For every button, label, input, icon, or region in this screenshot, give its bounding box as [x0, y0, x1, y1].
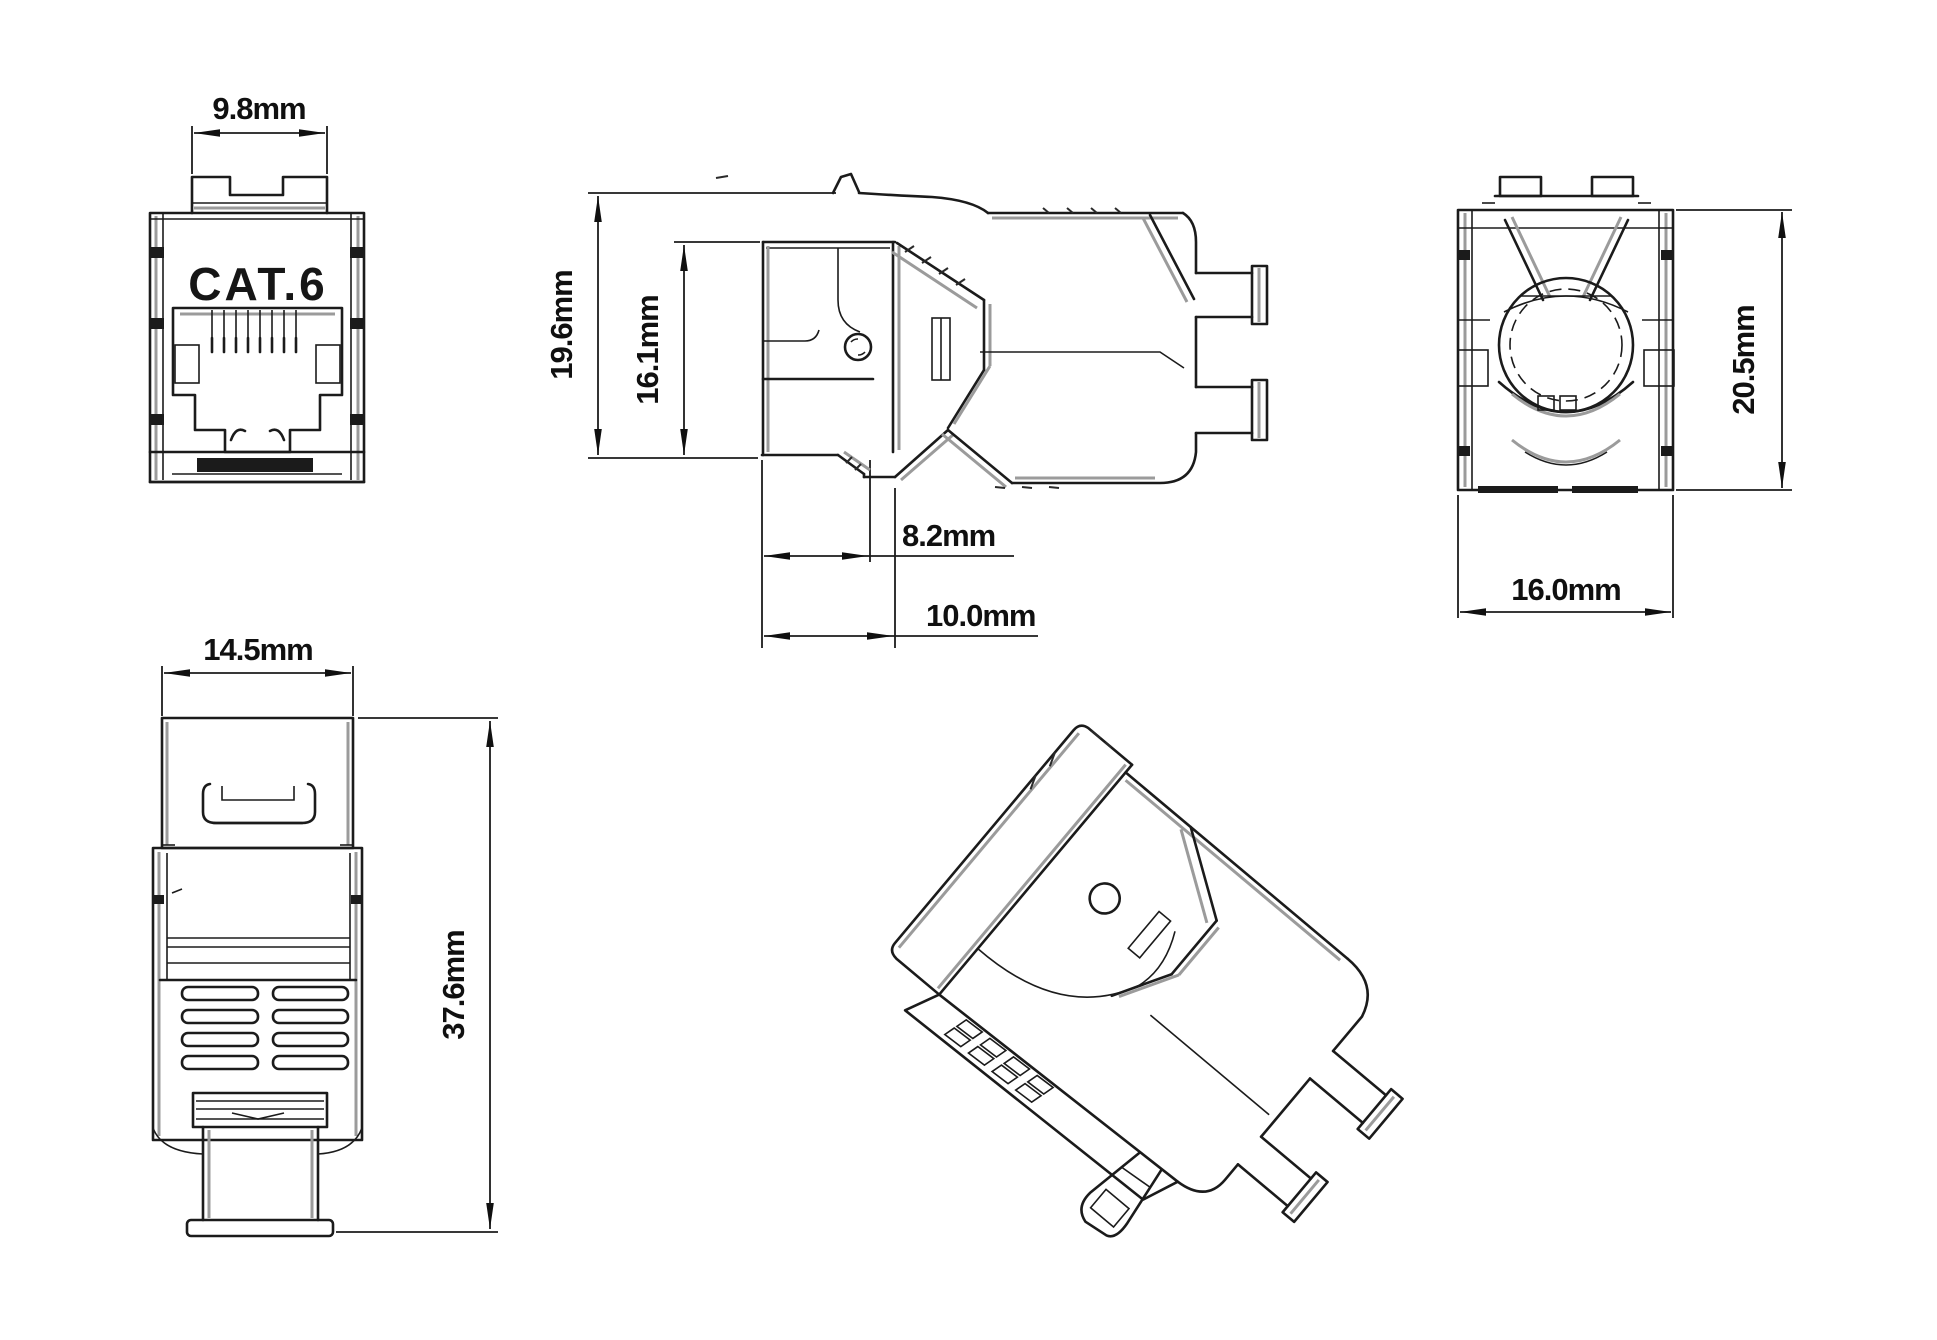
technical-drawing-canvas: 9.8mm CAT.6: [0, 0, 1937, 1340]
rj45-port: [173, 308, 342, 452]
side-body: [762, 174, 1267, 488]
dim-label-overall-length: 37.6mm: [436, 930, 471, 1039]
iso-vent-band: [905, 977, 1178, 1216]
top-view: 14.5mm: [153, 632, 498, 1236]
dimension-overall-length: 37.6mm: [336, 718, 498, 1232]
top-u-handle: [203, 784, 315, 823]
dimension-rear-width: 16.0mm: [1458, 495, 1673, 618]
iso-top-pin: [1305, 1045, 1403, 1139]
front-body: CAT.6: [150, 213, 364, 482]
dimension-rear-height: 20.5mm: [1676, 210, 1792, 490]
side-latch-plate: [892, 243, 990, 428]
dim-label-latch-depth: 8.2mm: [902, 518, 995, 553]
cable-entry-circle: [1499, 278, 1633, 465]
side-view: 19.6mm 16.1mm 8.2mm 10.0mm: [544, 174, 1267, 648]
top-rear-flange: [187, 1220, 333, 1236]
top-front-cap: [162, 718, 353, 848]
rear-body: [1458, 210, 1674, 493]
vent-slots: [182, 987, 348, 1069]
top-rear-stem: [187, 1093, 333, 1236]
dim-label-rear-width: 16.0mm: [1511, 572, 1620, 607]
technical-drawing-page: 9.8mm CAT.6: [0, 0, 1937, 1340]
dimension-slot-width: 9.8mm: [192, 91, 327, 174]
top-main-body: [153, 845, 362, 1154]
dim-label-body-height: 16.1mm: [630, 295, 665, 404]
dimension-front-depth: 10.0mm: [764, 488, 1038, 648]
side-top-pin: [1196, 266, 1267, 324]
rear-view: 20.5mm 16.0mm: [1458, 177, 1792, 618]
dimension-body-height: 16.1mm: [630, 242, 760, 455]
rj45-pin-contacts: [212, 310, 296, 352]
front-view: 9.8mm CAT.6: [150, 91, 364, 482]
dimension-overall-height: 19.6mm: [544, 176, 836, 458]
dim-label-top-width: 14.5mm: [203, 632, 312, 667]
iso-bottom-pin: [1233, 1131, 1328, 1222]
side-latch-tip: [833, 174, 859, 193]
front-bottom: [150, 452, 364, 482]
iso-housing: [939, 772, 1384, 1211]
front-bottom-bar: [197, 458, 313, 472]
dim-label-overall-height: 19.6mm: [544, 270, 579, 379]
dim-label-slot-width: 9.8mm: [212, 91, 305, 126]
dim-label-rear-height: 20.5mm: [1726, 305, 1761, 414]
side-screw-hole: [845, 334, 871, 360]
isometric-view: [836, 722, 1455, 1327]
side-bottom-pin: [1196, 380, 1267, 440]
dimension-top-width: 14.5mm: [162, 632, 353, 716]
cat6-marking: CAT.6: [188, 258, 327, 310]
iso-front-cap: [888, 722, 1132, 995]
side-latch-foot: [838, 430, 954, 480]
dim-label-front-depth: 10.0mm: [926, 598, 1035, 633]
front-top-tab: [192, 177, 327, 213]
rear-top-tabs: [1482, 177, 1651, 203]
iso-screw-hole: [1084, 877, 1126, 919]
